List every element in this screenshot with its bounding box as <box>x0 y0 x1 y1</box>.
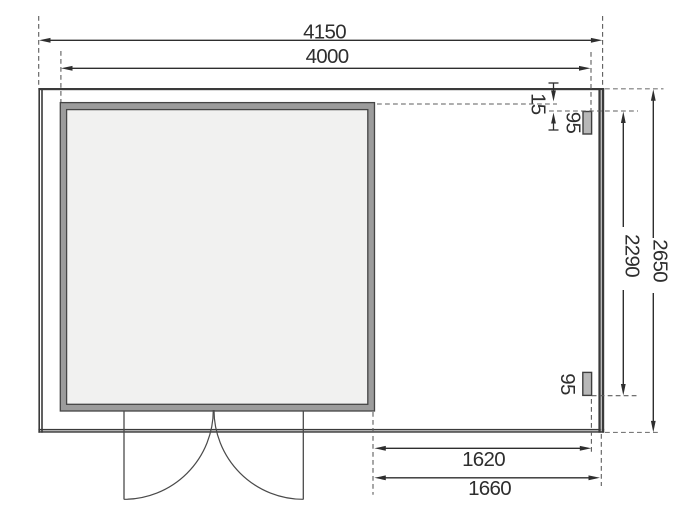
svg-text:95: 95 <box>562 112 585 134</box>
svg-text:2650: 2650 <box>648 239 671 282</box>
svg-text:2290: 2290 <box>620 234 643 277</box>
svg-text:15: 15 <box>526 93 549 115</box>
svg-text:95: 95 <box>556 373 579 395</box>
svg-text:4000: 4000 <box>306 45 349 68</box>
svg-text:4150: 4150 <box>303 21 346 44</box>
svg-text:1620: 1620 <box>462 448 505 471</box>
svg-text:1660: 1660 <box>468 477 511 500</box>
